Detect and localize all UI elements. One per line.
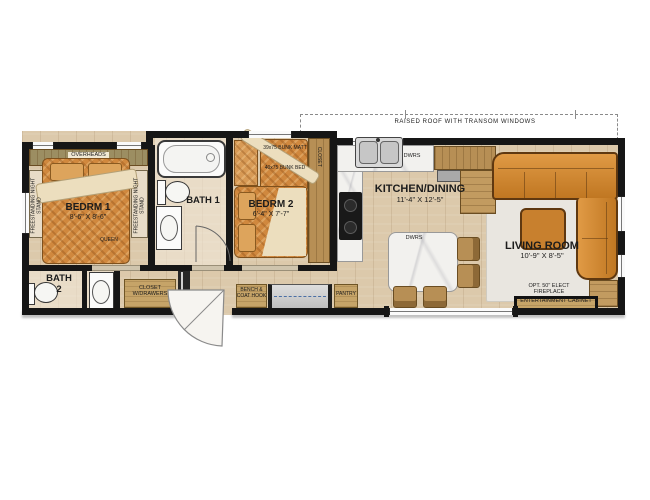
raised-roof-dash-top bbox=[300, 114, 618, 115]
pillow bbox=[238, 224, 256, 252]
sofa-back-seam bbox=[498, 168, 614, 169]
bath2-name: BATH 2 bbox=[44, 274, 74, 295]
island-drawers-label: DWRS bbox=[401, 235, 427, 241]
bedroom1-dims: 8'-6" X 8'-6" bbox=[56, 214, 120, 222]
bunk-bed-label: 40x75 BUNK BED bbox=[262, 166, 308, 172]
faucet bbox=[376, 138, 380, 142]
nightstand-right-label: FREESTANDING NIGHT STAND bbox=[134, 174, 145, 238]
sofa-seam bbox=[586, 172, 587, 198]
nightstand-left-label: FREESTANDING NIGHT STAND bbox=[31, 174, 42, 238]
wall bbox=[148, 145, 155, 271]
pantry-label: PANTRY bbox=[332, 292, 360, 298]
wardrobe-detail bbox=[181, 272, 183, 301]
sectional-sofa-right bbox=[576, 198, 618, 280]
bath1-sink bbox=[160, 215, 178, 241]
wall bbox=[140, 265, 192, 271]
dining-chair bbox=[457, 237, 480, 261]
bath2-sink bbox=[92, 280, 110, 304]
window bbox=[618, 254, 625, 278]
burner bbox=[344, 221, 357, 234]
wall bbox=[114, 265, 120, 308]
sofa-seam bbox=[524, 172, 525, 198]
sink-basin-right bbox=[380, 141, 399, 164]
raised-roof-label: RAISED ROOF WITH TRANSOM WINDOWS bbox=[375, 119, 555, 126]
hall-closet-label: CLOSET W/DRAWERS bbox=[124, 285, 176, 297]
window bbox=[389, 308, 513, 315]
kitchen-dims: 11'-4" X 12'-5" bbox=[380, 196, 460, 204]
door-opening bbox=[92, 265, 140, 271]
sofa-seam bbox=[582, 238, 608, 239]
dining-chair bbox=[393, 286, 417, 308]
burner bbox=[344, 199, 357, 212]
upper-cabinets bbox=[434, 146, 496, 170]
bedroom2-dims: 6'-4" X 7'-7" bbox=[242, 211, 300, 219]
counter-drawers-label: DWRS bbox=[399, 153, 425, 159]
window-jamb bbox=[513, 306, 518, 317]
hall-window-seat bbox=[268, 284, 332, 311]
bunk-mattress-label: 39x75 BUNK MATT bbox=[262, 146, 308, 152]
closet-label: CLOSET bbox=[315, 133, 321, 181]
bedroom1-name: BEDRM 1 bbox=[56, 202, 120, 213]
window bbox=[618, 196, 625, 232]
wall bbox=[82, 271, 87, 308]
door-opening bbox=[242, 265, 298, 271]
queen-label: QUEEN bbox=[96, 238, 122, 244]
wall bbox=[224, 265, 242, 271]
wall bbox=[298, 265, 330, 271]
bedroom2-name: BEDRM 2 bbox=[242, 199, 300, 210]
window bbox=[22, 192, 29, 234]
floor-plan: RAISED ROOF WITH TRANSOM WINDOWS OVERHEA… bbox=[0, 0, 650, 500]
living-dims: 10'-9" X 8'-5" bbox=[508, 252, 576, 260]
overheads-label: OVERHEADS bbox=[29, 152, 148, 158]
sink-basin-left bbox=[359, 141, 378, 164]
wall bbox=[330, 133, 337, 271]
dimension-tick bbox=[575, 110, 576, 119]
entertainment-cabinet-label: ENTERTAINMENT CABINET bbox=[514, 298, 598, 304]
raised-roof-dash-right bbox=[617, 114, 618, 140]
sectional-sofa-top bbox=[492, 152, 618, 200]
kitchen-name: KITCHEN/DINING bbox=[368, 183, 472, 195]
door-opening bbox=[192, 265, 224, 271]
dining-chair bbox=[423, 286, 447, 308]
bench-label: BENCH & COAT HOOK bbox=[236, 288, 267, 299]
wall bbox=[146, 131, 336, 138]
bath1-name: BATH 1 bbox=[180, 196, 226, 207]
dimension-tick bbox=[405, 110, 406, 119]
window bbox=[116, 142, 142, 149]
wall bbox=[22, 308, 190, 315]
dining-chair bbox=[457, 264, 480, 288]
wardrobe bbox=[178, 268, 190, 306]
window bbox=[32, 142, 54, 149]
window bbox=[248, 131, 292, 138]
wall bbox=[226, 133, 233, 271]
fireplace-note: OPT. 50" ELECT FIREPLACE bbox=[518, 283, 580, 295]
tub-drain bbox=[206, 153, 215, 162]
sofa-seam bbox=[555, 172, 556, 198]
sofa-arm-seam bbox=[606, 202, 607, 274]
glass-line bbox=[274, 296, 326, 297]
